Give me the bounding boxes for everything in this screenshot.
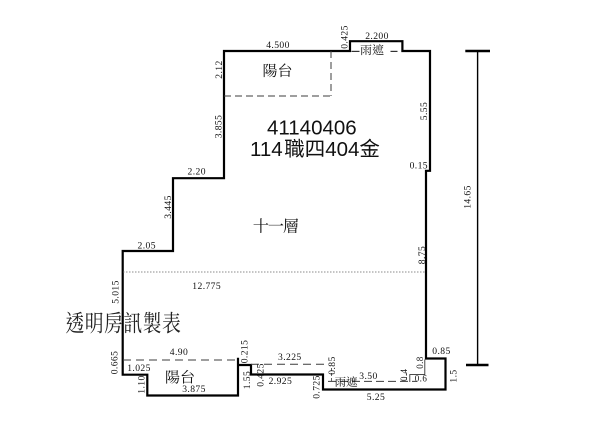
svg-text:4.500: 4.500 (266, 40, 290, 51)
svg-text:3.445: 3.445 (163, 195, 174, 219)
svg-text:0.215: 0.215 (239, 340, 250, 364)
svg-text:0.665: 0.665 (109, 351, 120, 375)
svg-text:0.425: 0.425 (340, 25, 351, 49)
svg-text:404: 404 (325, 138, 359, 161)
svg-text:5.015: 5.015 (110, 280, 121, 304)
svg-text:3.855: 3.855 (213, 115, 224, 139)
svg-text:14.65: 14.65 (462, 185, 473, 209)
svg-text:12.775: 12.775 (192, 281, 221, 292)
svg-text:0.15: 0.15 (410, 160, 428, 171)
svg-text:1.55: 1.55 (242, 371, 253, 389)
svg-text:2.20: 2.20 (188, 167, 206, 178)
svg-text:2.925: 2.925 (269, 376, 293, 387)
svg-text:3.50: 3.50 (359, 371, 377, 382)
svg-text:41140406: 41140406 (267, 116, 357, 139)
svg-text:0.85: 0.85 (327, 356, 338, 374)
svg-text:3.225: 3.225 (278, 352, 302, 363)
svg-text:0.8: 0.8 (415, 356, 425, 369)
svg-text:2.200: 2.200 (365, 31, 389, 42)
svg-text:5.25: 5.25 (367, 392, 385, 403)
svg-text:0.85: 0.85 (432, 346, 450, 357)
svg-text:114: 114 (250, 138, 283, 161)
svg-text:0.6: 0.6 (415, 374, 428, 384)
svg-text:1.10: 1.10 (136, 375, 147, 393)
svg-text:4.90: 4.90 (170, 347, 188, 358)
svg-text:1.5: 1.5 (448, 369, 459, 382)
svg-text:2.12: 2.12 (214, 60, 225, 78)
svg-text:2.05: 2.05 (138, 240, 156, 251)
svg-text:1.025: 1.025 (127, 363, 151, 374)
svg-text:5.55: 5.55 (419, 102, 430, 120)
svg-text:3.875: 3.875 (182, 384, 206, 395)
svg-text:0.4: 0.4 (399, 368, 409, 381)
svg-text:0.725: 0.725 (311, 375, 322, 399)
svg-text:0.425: 0.425 (255, 363, 266, 387)
svg-text:8.75: 8.75 (417, 246, 428, 264)
